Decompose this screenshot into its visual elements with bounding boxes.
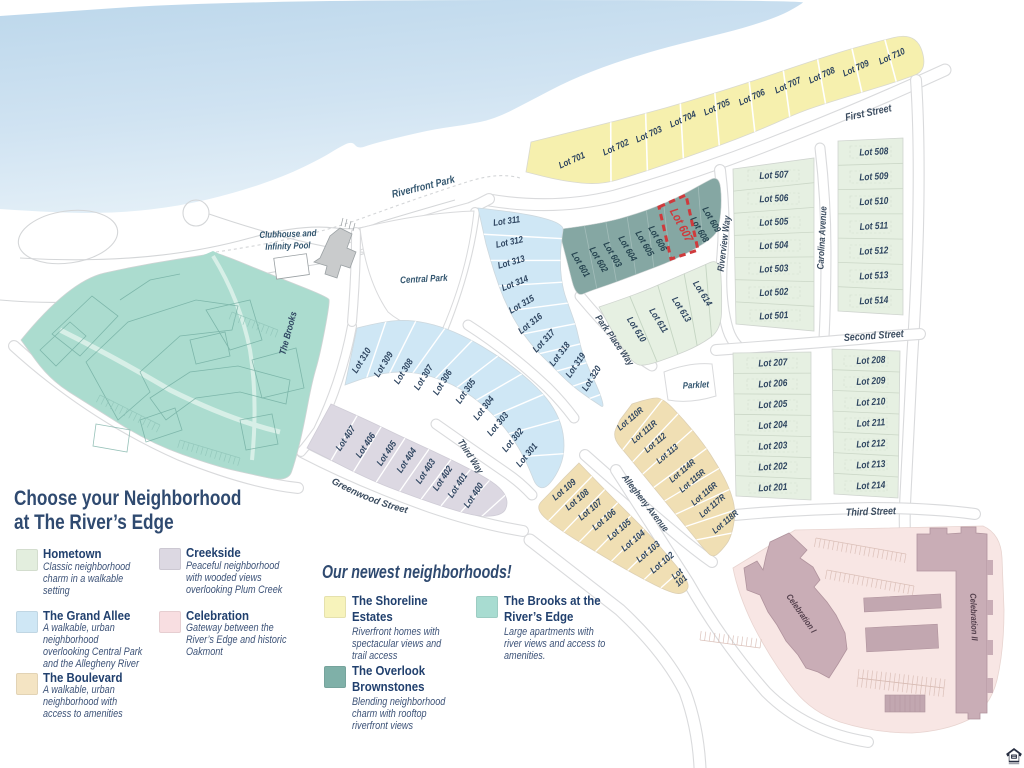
svg-text:Lot 514: Lot 514 bbox=[859, 294, 889, 306]
svg-text:Lot 209: Lot 209 bbox=[856, 375, 887, 387]
svg-text:Infinity Pool: Infinity Pool bbox=[265, 240, 311, 252]
svg-text:Lot 502: Lot 502 bbox=[759, 286, 789, 298]
svg-text:Lot 505: Lot 505 bbox=[759, 216, 790, 228]
svg-text:Third Street: Third Street bbox=[846, 505, 897, 519]
svg-text:Lot 201: Lot 201 bbox=[758, 481, 788, 493]
svg-text:Lot 508: Lot 508 bbox=[859, 145, 890, 157]
svg-text:Lot 203: Lot 203 bbox=[758, 440, 788, 452]
svg-text:Lot 513: Lot 513 bbox=[859, 269, 889, 281]
svg-text:Lot 213: Lot 213 bbox=[856, 458, 886, 470]
svg-text:Clubhouse and: Clubhouse and bbox=[259, 227, 317, 240]
svg-text:Lot 204: Lot 204 bbox=[758, 419, 788, 431]
svg-text:Lot 504: Lot 504 bbox=[759, 239, 789, 251]
svg-text:Lot 509: Lot 509 bbox=[859, 170, 890, 182]
svg-text:Lot 511: Lot 511 bbox=[859, 220, 888, 232]
svg-text:Lot 501: Lot 501 bbox=[759, 309, 789, 321]
svg-text:Lot 510: Lot 510 bbox=[859, 195, 889, 207]
svg-text:Lot 210: Lot 210 bbox=[856, 396, 886, 408]
svg-text:Lot 202: Lot 202 bbox=[758, 460, 788, 472]
svg-text:Parklet: Parklet bbox=[682, 379, 710, 391]
svg-text:Lot 205: Lot 205 bbox=[758, 398, 789, 410]
svg-text:Lot 507: Lot 507 bbox=[759, 169, 790, 181]
svg-text:Lot 206: Lot 206 bbox=[758, 377, 789, 389]
svg-text:Lot 211: Lot 211 bbox=[856, 417, 885, 429]
svg-text:Riverfront Park: Riverfront Park bbox=[391, 174, 457, 201]
svg-text:Lot 214: Lot 214 bbox=[856, 479, 886, 491]
svg-text:Lot 512: Lot 512 bbox=[859, 245, 889, 257]
svg-text:Lot 208: Lot 208 bbox=[856, 354, 887, 366]
svg-text:Lot 503: Lot 503 bbox=[759, 263, 789, 275]
svg-text:Lot 207: Lot 207 bbox=[758, 356, 789, 368]
svg-text:Celebration II: Celebration II bbox=[968, 593, 979, 641]
svg-text:Lot 212: Lot 212 bbox=[856, 438, 886, 450]
svg-text:Second Street: Second Street bbox=[843, 328, 904, 344]
svg-text:Lot 506: Lot 506 bbox=[759, 192, 790, 204]
